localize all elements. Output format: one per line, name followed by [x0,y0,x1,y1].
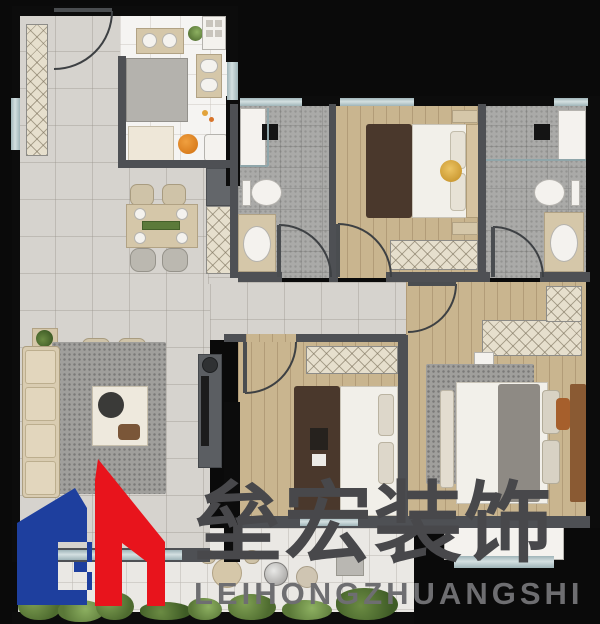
coffee-table-tray [98,392,124,418]
interior-wall [230,104,238,278]
bed-headboard [570,384,586,502]
sofa-cushion [25,350,56,384]
hall-cabinet [206,206,232,274]
coffee-table-decor [118,424,140,440]
window [340,98,414,106]
table-runner [142,221,180,230]
fridge-icon [206,20,213,27]
dining-chair [130,248,156,272]
logo-red-h-house [95,459,165,606]
exterior-wall [586,96,600,528]
interior-wall [329,272,338,282]
bed-decor-pad [312,454,326,466]
bed-decor-box [310,428,328,450]
toilet-tank [242,180,251,206]
exterior-wall [226,12,238,62]
kitchen-island [126,58,188,122]
hob-ring-icon [200,78,218,92]
place-setting-icon [176,208,188,220]
dishwasher [204,134,228,162]
hob-ring-icon [200,59,218,73]
condiment-icon [209,117,214,122]
tv-screen [201,376,209,446]
toilet-bowl [534,179,565,206]
place-setting-icon [176,232,188,244]
toilet-bowl [251,179,282,206]
door-opening [246,334,296,342]
company-logo [12,450,187,615]
bedroom1-low-cabinet [390,240,478,270]
condiment-icon [202,110,208,116]
bedroom2-wardrobe [306,346,398,374]
exterior-wall [12,6,238,16]
interior-wall [329,104,336,278]
watermark-company-name-cn: 垒宏装饰 [194,478,554,570]
logo-blue-g-house [17,488,92,605]
speaker-icon [202,357,218,373]
window [227,62,238,100]
dining-chair [130,184,154,206]
bed-lamp-gold [440,160,462,182]
bed-pillow [378,394,394,436]
sofa-cushion [25,387,56,421]
interior-wall [238,272,282,282]
window [11,98,20,150]
bed-runner [366,124,412,218]
watermark-company-name-en: LEIHONGZHUANGSHI [194,576,584,612]
dining-chair [162,184,186,206]
kitchen-stool [178,134,198,154]
toilet-tank [571,180,580,206]
kitchen-low-cabinet [128,126,174,162]
shower-head-icon [262,124,278,140]
shower-tray [558,110,586,160]
interior-wall [118,56,126,168]
entry-shoe-cabinet [26,24,48,156]
window [554,98,588,106]
kitchen-sink-bowl [142,33,157,48]
dining-chair [162,248,188,272]
side-table-plant-icon [36,330,53,347]
interior-wall [478,104,486,278]
vanity-sink [550,224,578,262]
place-setting-icon [134,208,146,220]
floorplan-image: 垒宏装饰 LEIHONGZHUANGSHI [0,0,600,624]
interior-wall [540,272,590,282]
nightstand [452,110,478,123]
kitchen-sink-bowl [162,33,177,48]
kitchen-plant-icon [188,26,203,41]
hallway-floor [210,282,406,340]
fridge-icon [215,20,222,27]
place-setting-icon [134,232,146,244]
shower-head-icon [534,124,550,140]
fridge-icon [215,30,222,37]
master-wardrobe [482,320,582,356]
window [240,98,302,106]
fridge-icon [206,30,213,37]
interior-wall [118,160,238,168]
master-wardrobe [546,286,582,322]
nightstand [452,222,478,235]
vanity-sink [243,226,271,262]
interior-wall [386,272,490,282]
accent-pillow [556,398,570,430]
